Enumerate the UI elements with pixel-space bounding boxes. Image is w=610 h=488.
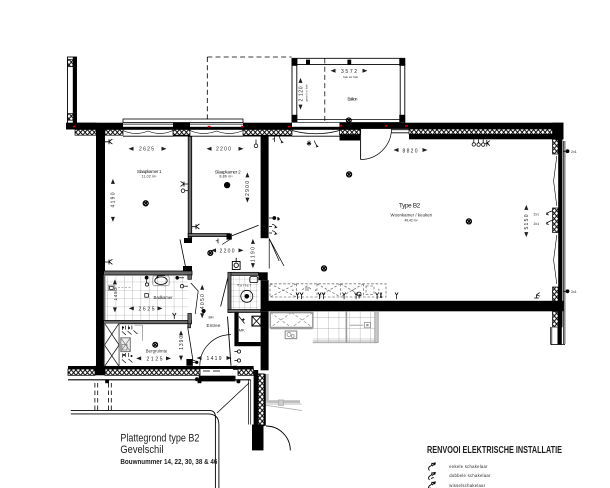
svg-text:4190: 4190 [111, 192, 117, 207]
svg-text:1390: 1390 [179, 336, 185, 350]
svg-text:Badkamer: Badkamer [154, 295, 173, 300]
svg-text:2 120: 2 120 [298, 86, 304, 101]
svg-text:11,02 m²: 11,02 m² [142, 174, 158, 178]
svg-text:hek tot hek: hek tot hek [343, 75, 359, 79]
svg-text:2200: 2200 [220, 248, 235, 254]
svg-text:2x1: 2x1 [534, 213, 540, 217]
svg-text:1450: 1450 [113, 288, 118, 301]
svg-text:enkele schakelaar: enkele schakelaar [449, 464, 488, 469]
svg-text:1419: 1419 [207, 356, 222, 362]
svg-text:8,86 m²: 8,86 m² [220, 175, 234, 179]
svg-text:1190: 1190 [251, 247, 257, 262]
svg-text:4050: 4050 [200, 294, 206, 309]
svg-text:a: a [292, 288, 294, 292]
svg-text:5150: 5150 [524, 214, 530, 229]
svg-text:2625: 2625 [139, 306, 155, 312]
svg-text:Balkon: Balkon [348, 96, 359, 101]
svg-text:8820: 8820 [403, 148, 418, 154]
svg-text:BH: BH [209, 315, 214, 319]
svg-text:2x1: 2x1 [571, 290, 577, 294]
svg-text:gevel tot hek: gevel tot hek [304, 84, 308, 102]
svg-text:RENVOOI ELEKTRISCHE INSTALLATI: RENVOOI ELEKTRISCHE INSTALLATIE [427, 444, 562, 456]
svg-text:wisselschakelaar: wisselschakelaar [449, 483, 485, 488]
svg-text:2x1: 2x1 [534, 222, 540, 226]
svg-text:dubbele schakelaar: dubbele schakelaar [449, 473, 491, 478]
svg-text:Type B2: Type B2 [399, 202, 421, 209]
svg-text:Woonkamer / keuken: Woonkamer / keuken [391, 213, 433, 218]
svg-text:Plattegrond type B2: Plattegrond type B2 [120, 432, 199, 444]
svg-text:2625: 2625 [139, 147, 154, 153]
svg-text:Entree: Entree [207, 323, 221, 328]
svg-text:2x1: 2x1 [571, 150, 577, 154]
svg-text:Bouwnummer 14, 22, 30, 38 & 46: Bouwnummer 14, 22, 30, 38 & 46 [120, 459, 217, 466]
svg-text:2900: 2900 [245, 181, 251, 196]
svg-text:2200: 2200 [216, 147, 231, 153]
svg-text:MK: MK [239, 328, 245, 333]
svg-text:49,42 m²: 49,42 m² [405, 218, 419, 222]
svg-text:Toilet: Toilet [237, 282, 252, 287]
svg-text:b: b [278, 217, 280, 221]
svg-text:b: b [378, 288, 380, 292]
svg-text:Gevelschil: Gevelschil [120, 444, 163, 456]
svg-text:2125: 2125 [147, 356, 163, 362]
svg-text:Bergruimte: Bergruimte [146, 348, 168, 353]
